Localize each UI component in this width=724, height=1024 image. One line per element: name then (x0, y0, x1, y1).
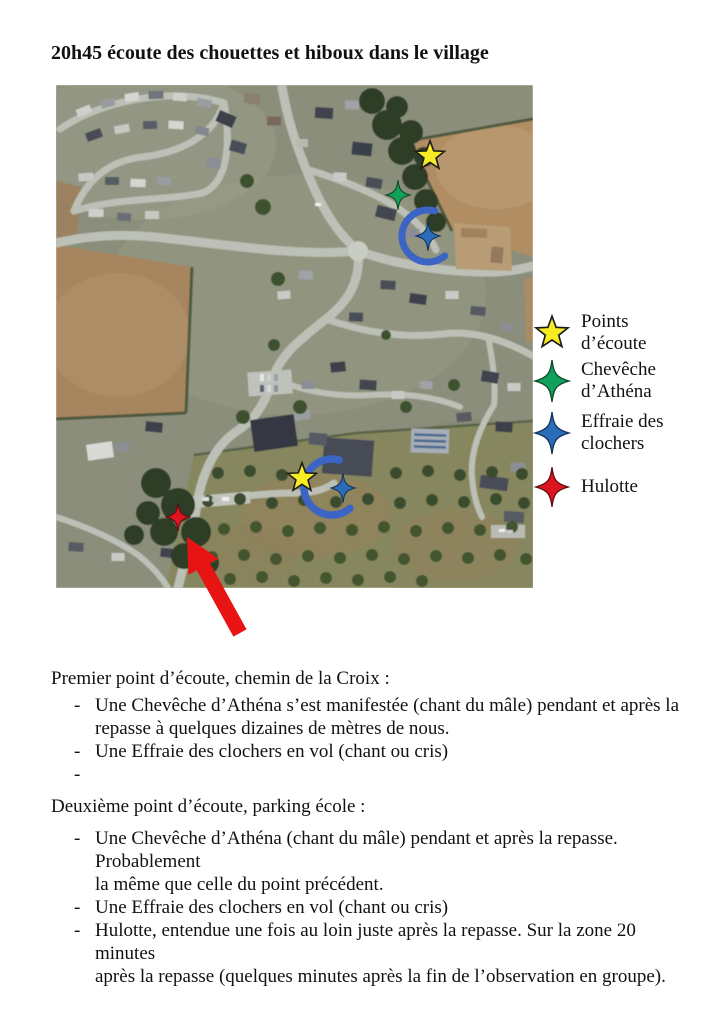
legend-item-effraie: Effraie des clochers (528, 410, 724, 456)
list-item: - Une Chevêche d’Athéna (chant du mâle) … (74, 827, 694, 896)
bullet-text: Une Chevêche d’Athéna (chant du mâle) pe… (95, 827, 694, 896)
page-title: 20h45 écoute des chouettes et hiboux dan… (51, 40, 489, 66)
bullet-dash: - (74, 827, 95, 850)
map-legend: Points d’écoute Chevêche d’Athéna Effrai… (528, 0, 724, 600)
list-item: - Une Chevêche d’Athéna s’est manifestée… (74, 694, 694, 740)
hulotte-star-icon (528, 464, 576, 510)
village-aerial-map (56, 85, 533, 588)
bullet-dash: - (74, 896, 95, 919)
section-1-heading: Premier point d’écoute, chemin de la Cro… (51, 667, 390, 690)
bullet-text: Une Effraie des clochers en vol (chant o… (95, 896, 694, 919)
bullet-dash: - (74, 694, 95, 717)
document-page: 20h45 écoute des chouettes et hiboux dan… (0, 0, 724, 1024)
list-item: - Une Effraie des clochers en vol (chant… (74, 740, 694, 763)
list-item: - Hulotte, entendue une fois au loin jus… (74, 919, 694, 988)
cheveche-star-icon (528, 357, 576, 405)
section-1-bullet-list: - Une Chevêche d’Athéna s’est manifestée… (74, 694, 694, 786)
legend-label-effraie: Effraie des clochers (581, 411, 663, 455)
legend-label-hulotte: Hulotte (581, 476, 638, 498)
bullet-dash: - (74, 919, 95, 942)
bullet-text: Une Chevêche d’Athéna s’est manifestée (… (95, 694, 694, 740)
bullet-dash: - (74, 763, 95, 786)
map-terrain (56, 85, 533, 588)
legend-label-cheveche: Chevêche d’Athéna (581, 359, 656, 403)
effraie-star-icon (528, 409, 576, 457)
list-item: - (74, 763, 694, 786)
points-ecoute-star-icon (528, 313, 576, 353)
list-item: - Une Effraie des clochers en vol (chant… (74, 896, 694, 919)
bullet-dash: - (74, 740, 95, 763)
bullet-text: Une Effraie des clochers en vol (chant o… (95, 740, 694, 763)
legend-item-cheveche: Chevêche d’Athéna (528, 358, 724, 404)
legend-item-hulotte: Hulotte (528, 464, 724, 510)
section-2-heading: Deuxième point d’écoute, parking école : (51, 795, 365, 818)
legend-item-points-ecoute: Points d’écoute (528, 310, 724, 356)
section-2-bullet-list: - Une Chevêche d’Athéna (chant du mâle) … (74, 827, 694, 988)
legend-label-points-ecoute: Points d’écoute (581, 311, 646, 355)
bullet-text: Hulotte, entendue une fois au loin juste… (95, 919, 694, 988)
